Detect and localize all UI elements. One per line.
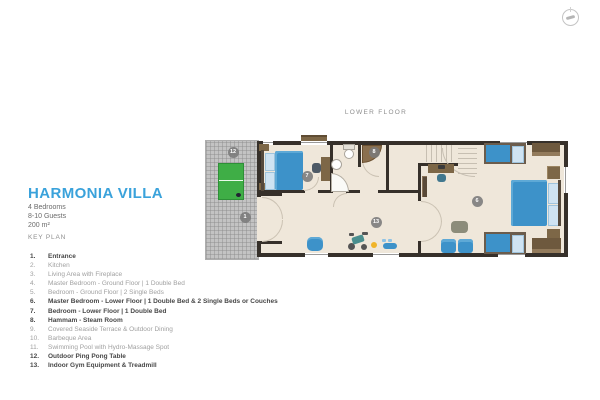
bed-headboard: [558, 180, 561, 226]
desk-lamp: [438, 165, 445, 169]
single-bed: [486, 145, 510, 162]
dumbbells: [388, 239, 392, 242]
wall-right: [564, 141, 568, 257]
window: [564, 167, 568, 193]
terrace: [205, 140, 259, 260]
sink: [331, 159, 342, 170]
single-bed: [486, 234, 510, 252]
armchair: [441, 239, 456, 253]
wardrobe: [422, 176, 427, 197]
wall-interior: [418, 163, 421, 201]
pillow: [512, 146, 524, 163]
desk-chair: [312, 163, 321, 173]
pouf: [307, 237, 323, 251]
coffee-table: [451, 221, 468, 233]
plan-marker-13: 13: [371, 217, 382, 228]
entrance-opening: [257, 197, 261, 241]
floor-label: LOWER FLOOR: [300, 109, 452, 116]
toilet: [344, 149, 354, 159]
plan-marker-7: 7: [302, 171, 313, 182]
wall-interior: [358, 145, 361, 167]
desk: [321, 157, 330, 181]
plan-marker-6: 6: [472, 196, 483, 207]
exercise-bike-icon: [361, 244, 367, 250]
planter: [301, 135, 327, 141]
plan-marker-1: 1: [240, 212, 251, 223]
pillow: [512, 235, 524, 253]
plan-marker-12: 12: [228, 147, 239, 158]
nightstand: [547, 229, 560, 238]
window: [301, 141, 327, 145]
wall-interior: [261, 193, 282, 196]
pillow: [265, 172, 275, 190]
wall-interior: [378, 190, 421, 193]
dumbbells: [383, 243, 397, 249]
floor-plan: LOWER FLOOR: [0, 0, 600, 400]
window: [305, 253, 328, 257]
wall-interior: [386, 145, 389, 193]
double-bed: [275, 151, 303, 190]
nightstand: [547, 166, 560, 179]
desk-chair: [437, 174, 446, 182]
dresser: [532, 143, 560, 156]
exercise-bike-icon: [362, 232, 368, 235]
dresser: [532, 238, 561, 253]
exercise-bike-icon: [349, 233, 354, 236]
pillow: [265, 153, 275, 171]
page: HARMONIA VILLA 4 Bedrooms 8-10 Guests 20…: [0, 0, 600, 400]
exercise-ball: [371, 242, 377, 248]
bed-headboard: [261, 150, 264, 191]
dumbbells: [382, 239, 386, 242]
wall-interior: [418, 241, 421, 255]
plan-marker-8: 8: [369, 147, 380, 158]
window: [373, 253, 399, 257]
master-double-bed: [511, 180, 547, 226]
ping-pong-table: [218, 163, 244, 200]
armchair: [458, 239, 473, 253]
